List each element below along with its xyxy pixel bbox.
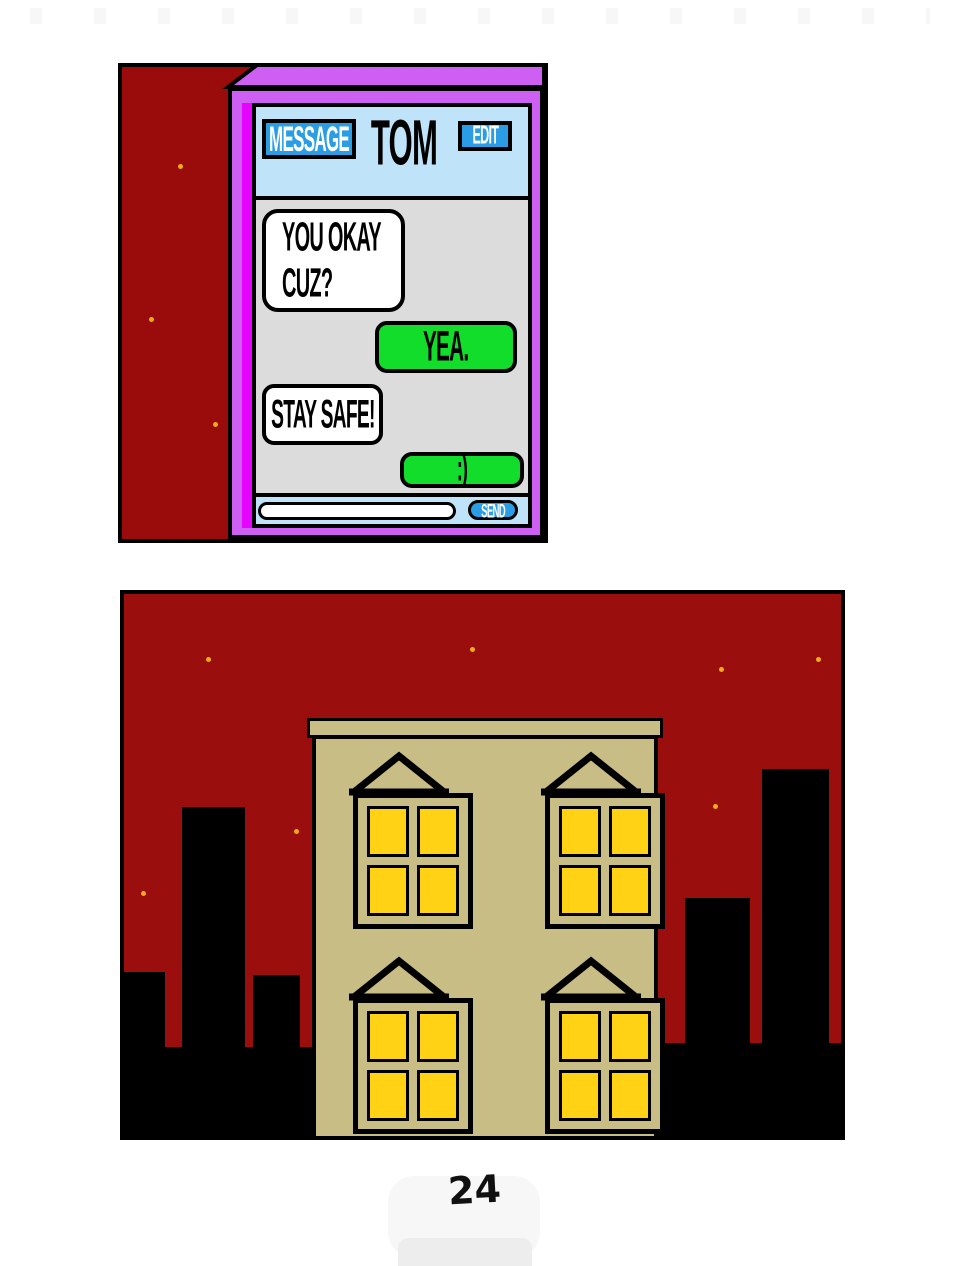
window-frame	[353, 998, 473, 1134]
window-pediment	[347, 957, 451, 1001]
message-text: YEA.	[423, 323, 468, 372]
comic-panel-cityscape	[120, 590, 845, 1140]
lit-window	[353, 998, 445, 1108]
star	[713, 804, 718, 809]
compose-bar: SEND	[256, 493, 528, 524]
message-button[interactable]: MESSAGE	[262, 119, 356, 159]
lit-window	[545, 998, 637, 1108]
window-frame	[545, 998, 665, 1134]
star	[816, 657, 821, 662]
lit-window	[353, 793, 445, 903]
contact-name: TOM	[359, 117, 449, 169]
window-pane	[559, 865, 601, 916]
page-number: 24	[447, 1167, 502, 1214]
message-app-header: MESSAGE TOM EDIT	[256, 107, 528, 200]
star	[206, 657, 211, 662]
window-pane	[609, 865, 651, 916]
phone-screen: MESSAGE TOM EDIT YOU OKAY CUZ? YEA.	[252, 103, 532, 528]
window-pane	[559, 1070, 601, 1121]
window-pane	[367, 1011, 409, 1062]
print-artifact	[30, 8, 930, 24]
star	[719, 667, 724, 672]
print-artifact	[398, 1238, 532, 1266]
message-text: STAY SAFE!	[271, 391, 374, 438]
window-pediment	[347, 752, 451, 796]
building-silhouette	[124, 1047, 313, 1140]
window-pane	[417, 865, 459, 916]
window-pane	[367, 1070, 409, 1121]
window-pane	[559, 806, 601, 857]
incoming-message-bubble: STAY SAFE!	[262, 384, 383, 445]
send-button[interactable]: SEND	[468, 500, 518, 520]
star	[470, 647, 475, 652]
message-text: YOU OKAY	[282, 214, 370, 261]
phone: MESSAGE TOM EDIT YOU OKAY CUZ? YEA.	[228, 87, 544, 539]
star	[178, 164, 183, 169]
star	[213, 422, 218, 427]
window-pane	[609, 1070, 651, 1121]
incoming-message-bubble: YOU OKAY CUZ?	[262, 209, 405, 312]
star	[149, 317, 154, 322]
window-frame	[353, 793, 473, 929]
window-pane	[367, 806, 409, 857]
outgoing-message-bubble: YEA.	[375, 321, 517, 373]
window-pane	[417, 1070, 459, 1121]
message-button-label: MESSAGE	[269, 118, 349, 159]
window-pane	[559, 1011, 601, 1062]
window-pediment	[539, 957, 643, 1001]
window-pane	[609, 1011, 651, 1062]
outgoing-message-bubble: :)	[400, 452, 524, 488]
edit-button[interactable]: EDIT	[458, 121, 512, 151]
edit-button-label: EDIT	[472, 121, 498, 151]
phone-accent-strip	[242, 103, 252, 528]
lit-window	[545, 793, 637, 903]
message-text: :)	[457, 449, 467, 492]
window-pane	[417, 806, 459, 857]
message-text: CUZ?	[282, 260, 370, 307]
window-pediment	[539, 752, 643, 796]
star	[294, 829, 299, 834]
window-pane	[609, 806, 651, 857]
window-frame	[545, 793, 665, 929]
comic-panel-phone: MESSAGE TOM EDIT YOU OKAY CUZ? YEA.	[118, 63, 548, 543]
chat-area: YOU OKAY CUZ? YEA. STAY SAFE! :)	[256, 200, 528, 493]
send-button-label: SEND	[481, 499, 505, 522]
star	[141, 891, 146, 896]
message-input[interactable]	[258, 502, 456, 520]
window-pane	[367, 865, 409, 916]
window-pane	[417, 1011, 459, 1062]
building-silhouette	[657, 1043, 841, 1140]
